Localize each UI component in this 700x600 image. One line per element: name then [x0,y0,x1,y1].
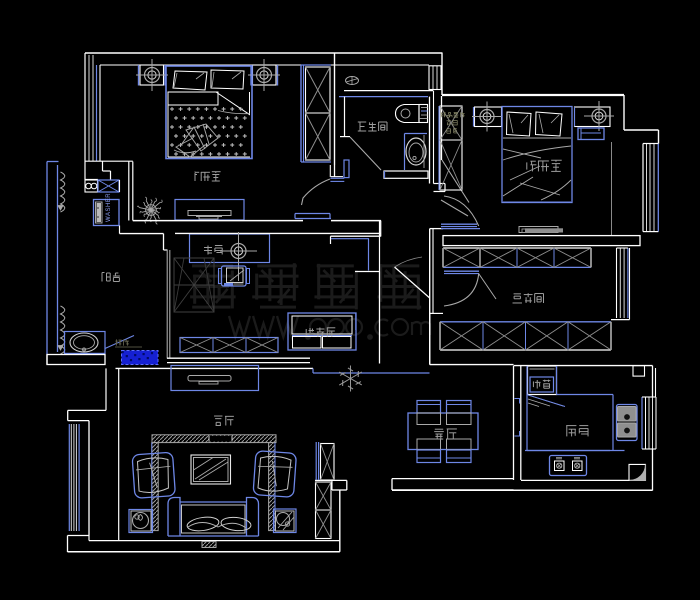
svg-text:WASHER: WASHER [106,193,112,222]
